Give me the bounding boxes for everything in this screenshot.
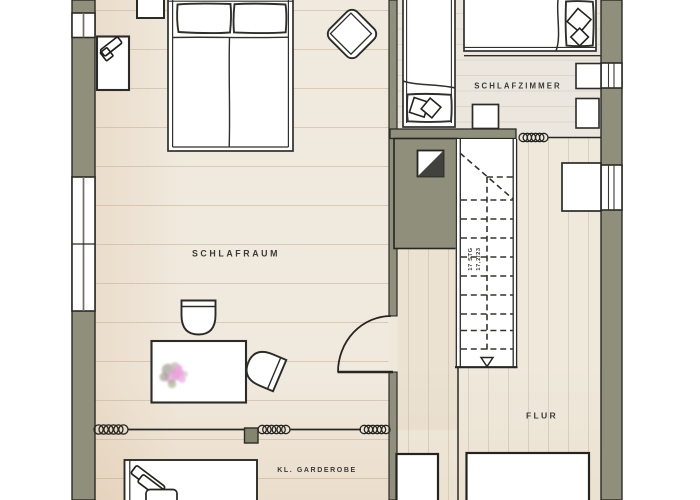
svg-text:SCHLAFRAUM: SCHLAFRAUM [192, 249, 280, 259]
svg-text:17 STG: 17 STG [468, 247, 474, 271]
svg-text:FLUR: FLUR [526, 411, 558, 421]
svg-text:SCHLAFZIMMER: SCHLAFZIMMER [474, 82, 562, 91]
svg-text:17,2/23: 17,2/23 [476, 247, 482, 271]
svg-text:KL. GARDEROBE: KL. GARDEROBE [277, 467, 357, 474]
